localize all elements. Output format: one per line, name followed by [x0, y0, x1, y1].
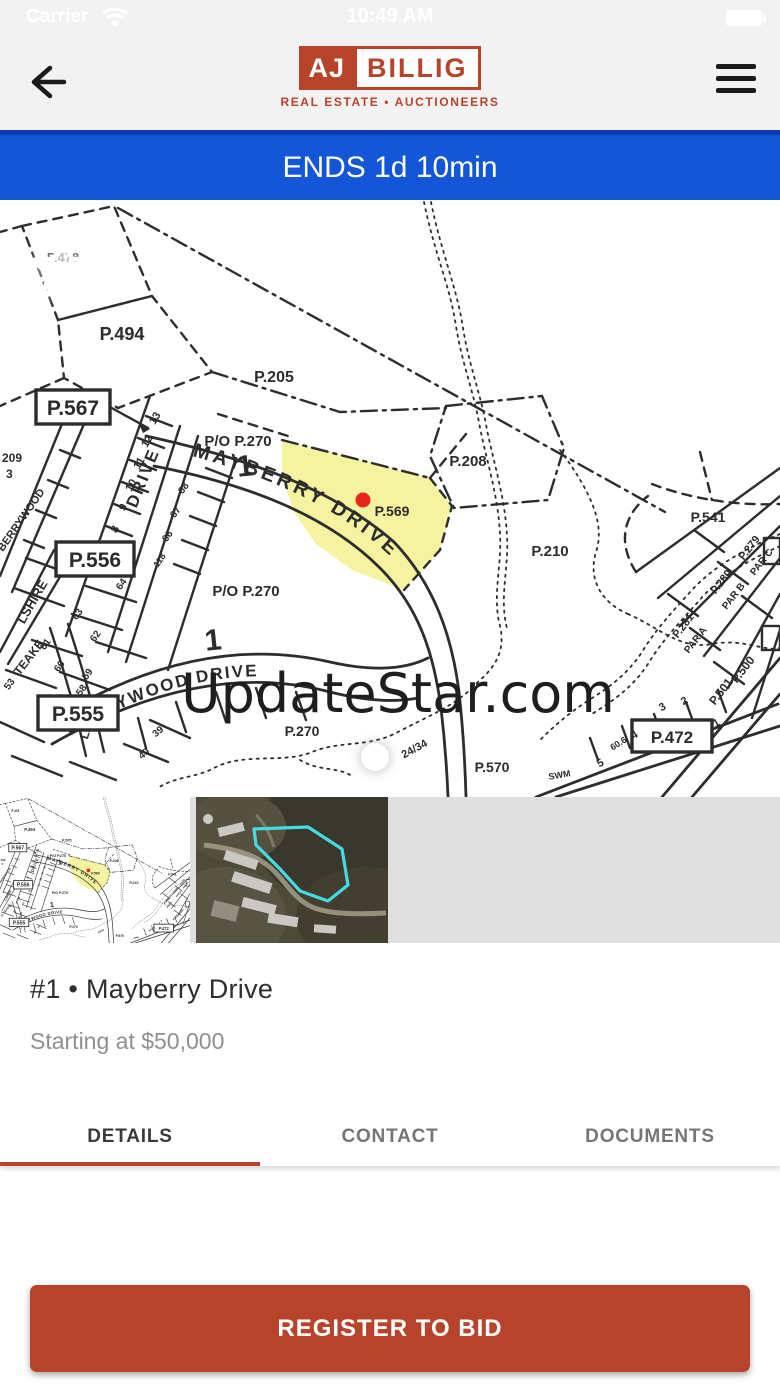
favorite-star-button[interactable]: [21, 226, 105, 310]
status-bar: Carrier 10:49 AM: [0, 0, 780, 35]
logo-billig-box: BILLIG: [354, 46, 481, 90]
tab-bar: DETAILS CONTACT DOCUMENTS: [0, 1106, 780, 1166]
thumbnail-plat-map[interactable]: [0, 797, 190, 943]
thumbnail-aerial-photo[interactable]: [196, 797, 388, 943]
share-icon[interactable]: [680, 238, 740, 298]
tab-contact[interactable]: CONTACT: [260, 1106, 520, 1166]
plat-map-svg: [0, 200, 780, 797]
carousel-page-indicator-dot: [361, 743, 389, 771]
starting-price: Starting at $50,000: [30, 1028, 224, 1055]
property-plat-map-image[interactable]: P.478 P.494 P.205 209 3 P.567 13 12 11 1…: [0, 200, 780, 797]
register-to-bid-button[interactable]: REGISTER TO BID: [30, 1285, 750, 1372]
countdown-text: ENDS 1d 10min: [282, 151, 497, 185]
image-thumbnail-strip: [0, 797, 780, 943]
hamburger-menu-button[interactable]: [716, 64, 756, 98]
logo-tagline: REAL ESTATE • AUCTIONEERS: [0, 95, 780, 109]
app-header: Carrier 10:49 AM AJ BILLIG REAL ESTATE •…: [0, 0, 780, 130]
auction-listing-page: Carrier 10:49 AM AJ BILLIG REAL ESTATE •…: [0, 0, 780, 1387]
battery-icon: [726, 10, 762, 26]
aj-billig-logo: AJ BILLIG REAL ESTATE • AUCTIONEERS: [0, 46, 780, 109]
tab-details[interactable]: DETAILS: [0, 1106, 260, 1166]
listing-title: #1 • Mayberry Drive: [30, 974, 273, 1005]
auction-countdown-banner: ENDS 1d 10min: [0, 130, 780, 200]
tab-documents[interactable]: DOCUMENTS: [520, 1106, 780, 1166]
logo-aj-box: AJ: [299, 46, 354, 90]
clock: 10:49 AM: [0, 5, 780, 28]
